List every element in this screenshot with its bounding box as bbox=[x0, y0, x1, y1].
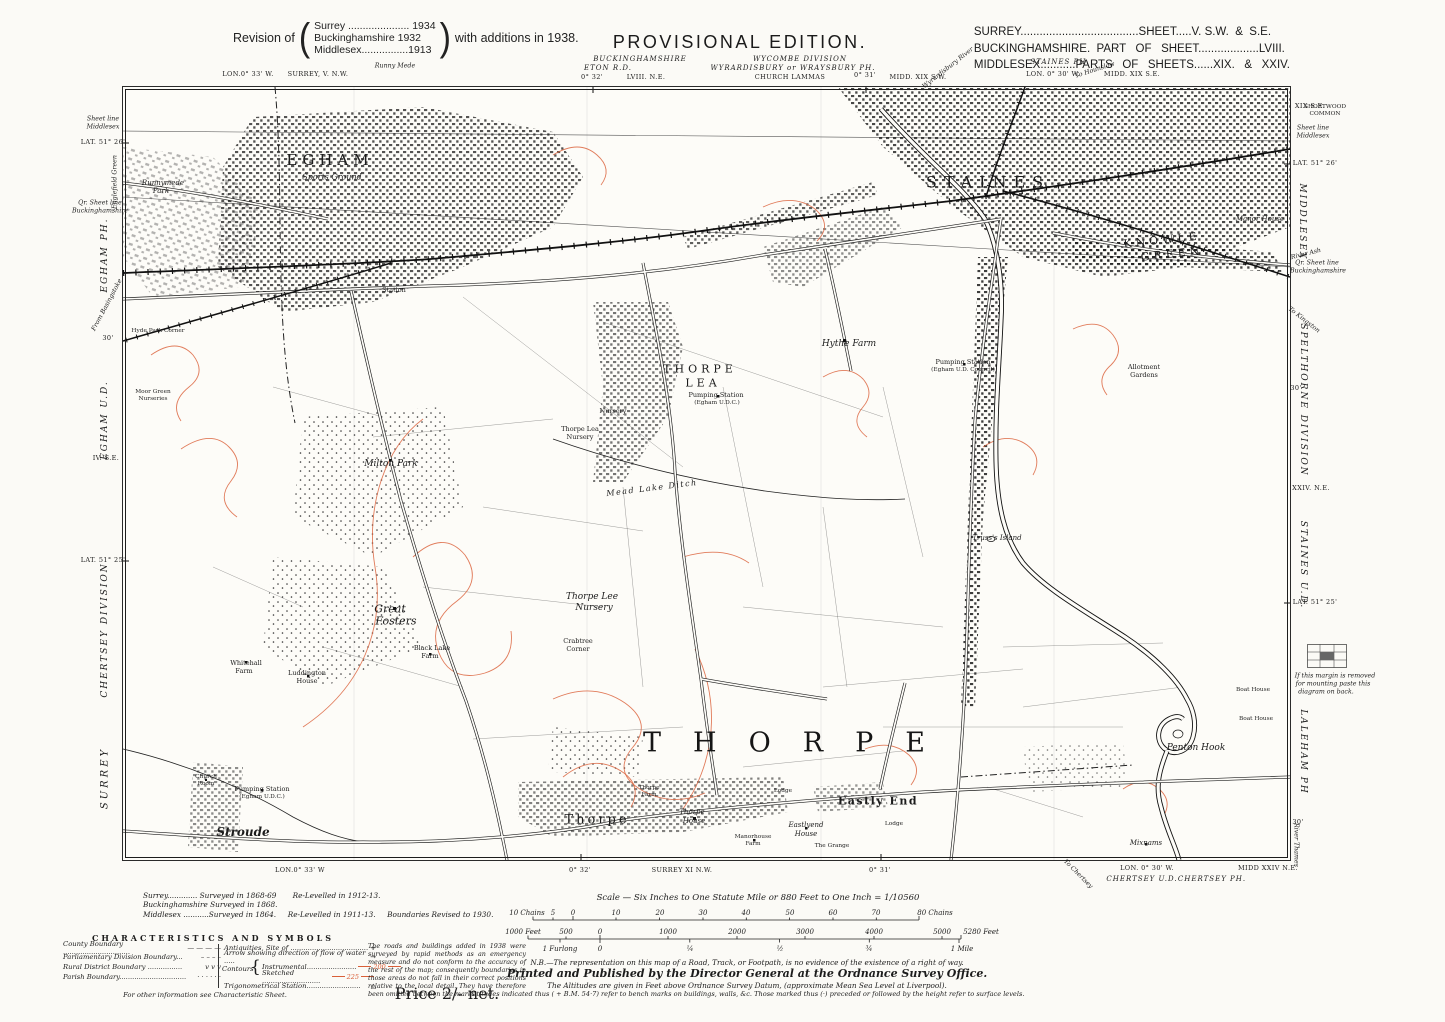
label-sheet-line: Sheet line bbox=[87, 116, 119, 123]
label-30: 30' bbox=[1292, 818, 1303, 826]
label-qr-sheet-line: Qr. Sheet line bbox=[78, 200, 122, 207]
label-surrey: SURREY bbox=[100, 747, 111, 809]
label-staines-u-d: STAINES U.D. bbox=[1298, 521, 1308, 610]
contours-brace: { bbox=[250, 957, 261, 977]
label-diagram-on-back: diagram on back. bbox=[1298, 689, 1354, 696]
label-lat-51-25: LAT. 51° 25' bbox=[81, 556, 126, 564]
os-provisional-map-sheet: Revision of ( Surrey ...................… bbox=[0, 0, 1445, 1022]
label-30: 30' bbox=[102, 334, 113, 342]
legend-row: Parliamentary Division Boundary...– – – … bbox=[63, 953, 221, 963]
map-drawing bbox=[123, 87, 1290, 860]
survey-history-note: Surrey............. Surveyed in 1868-69 … bbox=[143, 891, 493, 919]
label-for-mounting-paste-this: for mounting paste this bbox=[1296, 681, 1371, 688]
label-buckinghamshire: BUCKINGHAMSHIRE bbox=[593, 55, 686, 63]
legend-label: Parliamentary Division Boundary... bbox=[63, 953, 183, 961]
label-wyrardisbury-river: Wyrardisbury River bbox=[921, 46, 975, 90]
label-buckinghamshire: Buckinghamshire bbox=[72, 208, 128, 215]
open-brace: ( bbox=[299, 19, 310, 58]
revision-note: Revision of ( Surrey ...................… bbox=[233, 20, 579, 56]
characteristic-sheet-note: For other information see Characteristic… bbox=[123, 991, 287, 999]
revision-lines: Surrey ..................... 1934 Buckin… bbox=[314, 20, 435, 56]
label-wycombe-division: WYCOMBE DIVISION bbox=[753, 55, 847, 63]
label-midd-xix-s-w: MIDD. XIX S.W. bbox=[890, 73, 947, 81]
right-of-way-note: N.B.—The representation on this map of a… bbox=[530, 958, 963, 967]
label-middlesex: Middlesex bbox=[87, 124, 120, 131]
label-egham-ph: EGHAM PH. bbox=[100, 218, 110, 293]
scale-statement: Scale — Six Inches to One Statute Mile o… bbox=[597, 893, 920, 903]
legend-label: Parish Boundary.........................… bbox=[63, 973, 186, 981]
label-lon-0-33-w: LON.0° 33' W bbox=[275, 866, 325, 874]
label-runny-mede: Runny Mede bbox=[375, 63, 415, 70]
label-lat-51-26: LAT. 51° 26' bbox=[81, 138, 126, 146]
label-qr-sheet-line: Qr. Sheet line bbox=[1295, 260, 1339, 267]
label-wyrardisbury-or-wraysbury-ph: WYRARDISBURY or WRAYSBURY PH. bbox=[711, 64, 876, 72]
legend-label: Rural District Boundary ................ bbox=[63, 963, 182, 971]
legend-symbol-dash-lg: — — — — bbox=[187, 944, 221, 952]
revision-prefix: Revision of bbox=[233, 31, 295, 45]
legend-row: County Boundary ........................… bbox=[63, 943, 221, 953]
revision-suffix: with additions in 1938. bbox=[455, 31, 579, 45]
label-30: 30' bbox=[1290, 384, 1301, 392]
label-0-31: 0° 31' bbox=[854, 71, 876, 79]
label-buckinghamshire: Buckinghamshire bbox=[1290, 268, 1346, 275]
legend-boundaries: County Boundary ........................… bbox=[63, 943, 221, 981]
label-iv-s-e: IV. S.E. bbox=[93, 454, 120, 462]
legend-divider bbox=[218, 944, 219, 988]
benchmark-note: Altitudes indicated thus ( + B.M. 54·7) … bbox=[470, 990, 1025, 998]
label-eton-r-d: ETON R.D. bbox=[584, 64, 632, 72]
label-surrey-xi-n-w: SURREY XI N.W. bbox=[652, 866, 713, 874]
label-lat-51-26: LAT. 51° 26' bbox=[1293, 159, 1338, 167]
label-lon-0-30-w: LON. 0° 30' W. bbox=[1120, 864, 1174, 872]
label-common: COMMON bbox=[1310, 111, 1341, 117]
label-englefield-green: Englefield Green bbox=[112, 155, 119, 209]
publisher-imprint: Printed and Published by the Director Ge… bbox=[507, 967, 987, 980]
contours-label: Contours bbox=[222, 965, 254, 973]
label-river-thames: River Thames bbox=[1293, 823, 1300, 867]
label-from-basingstoke: From Basingstoke bbox=[90, 278, 123, 332]
label-chertsey-u-d: CHERTSEY U.D. bbox=[1106, 875, 1177, 883]
adjoining-sheets-diagram bbox=[1307, 644, 1347, 668]
legend-label: Trigonometrical Station.................… bbox=[224, 982, 361, 990]
label-middlesex: Middlesex bbox=[1297, 133, 1330, 140]
label-chertsey-division: CHERTSEY DIVISION bbox=[100, 562, 110, 697]
label-chertsey-ph: CHERTSEY PH. bbox=[1178, 875, 1246, 883]
field-boundaries bbox=[213, 297, 1183, 817]
label-egham-u-d: EGHAM U.D. bbox=[100, 380, 110, 460]
label-lviii-n-e: LVIII. N.E. bbox=[627, 73, 666, 81]
sheet-references: SURREY..................................… bbox=[974, 24, 1290, 74]
label-xix-s-e: XIX S.E. bbox=[1295, 102, 1325, 110]
sheet-title: PROVISIONAL EDITION. bbox=[613, 32, 867, 53]
label-0-32: 0° 32' bbox=[569, 866, 591, 874]
label-midd-xxiv-n-e: MIDD XXIV N.E. bbox=[1238, 864, 1298, 872]
label-shortwood: SHORTWOOD bbox=[1304, 104, 1346, 110]
legend-row: Trigonometrical Station.................… bbox=[224, 981, 376, 991]
label-sheet-line: Sheet line bbox=[1297, 125, 1329, 132]
label-0-31: 0° 31' bbox=[869, 866, 891, 874]
label-0-32: 0° 32' bbox=[581, 73, 603, 81]
label-to-kingston: To Kingston bbox=[1287, 306, 1321, 335]
label-lon-0-33-w: LON.0° 33' W. bbox=[222, 70, 273, 78]
label-middlesex: MIDDLESEX bbox=[1297, 184, 1307, 261]
close-brace: ) bbox=[440, 19, 451, 58]
label-lat-51-25: LAT. 51° 25' bbox=[1293, 598, 1338, 606]
legend-row: Parish Boundary.........................… bbox=[63, 972, 221, 982]
label-to-chertsey: To Chertsey bbox=[1062, 858, 1094, 890]
legend-row: Rural District Boundary ................… bbox=[63, 962, 221, 972]
scale-bars bbox=[510, 905, 990, 955]
label-spelthorne-division: SPELTHORNE DIVISION bbox=[1298, 323, 1308, 476]
legend-row: Arrow showing direction of flow of water… bbox=[224, 953, 376, 963]
label-surrey-v-n-w: SURREY, V. N.W. bbox=[288, 70, 349, 78]
map-canvas bbox=[122, 86, 1291, 861]
label-church-lammas: CHURCH LAMMAS bbox=[755, 73, 825, 81]
label-if-this-margin-is-removed: If this margin is removed bbox=[1295, 673, 1376, 680]
altitude-datum-note: The Altitudes are given in Feet above Or… bbox=[547, 981, 947, 990]
label-xxiv-n-e: XXIV. N.E. bbox=[1292, 484, 1330, 492]
label-river-ash: River Ash bbox=[1290, 247, 1322, 261]
label-laleham-ph: LALEHAM PH bbox=[1298, 709, 1308, 794]
legend-row: Sketched ...........................225 bbox=[224, 972, 376, 982]
